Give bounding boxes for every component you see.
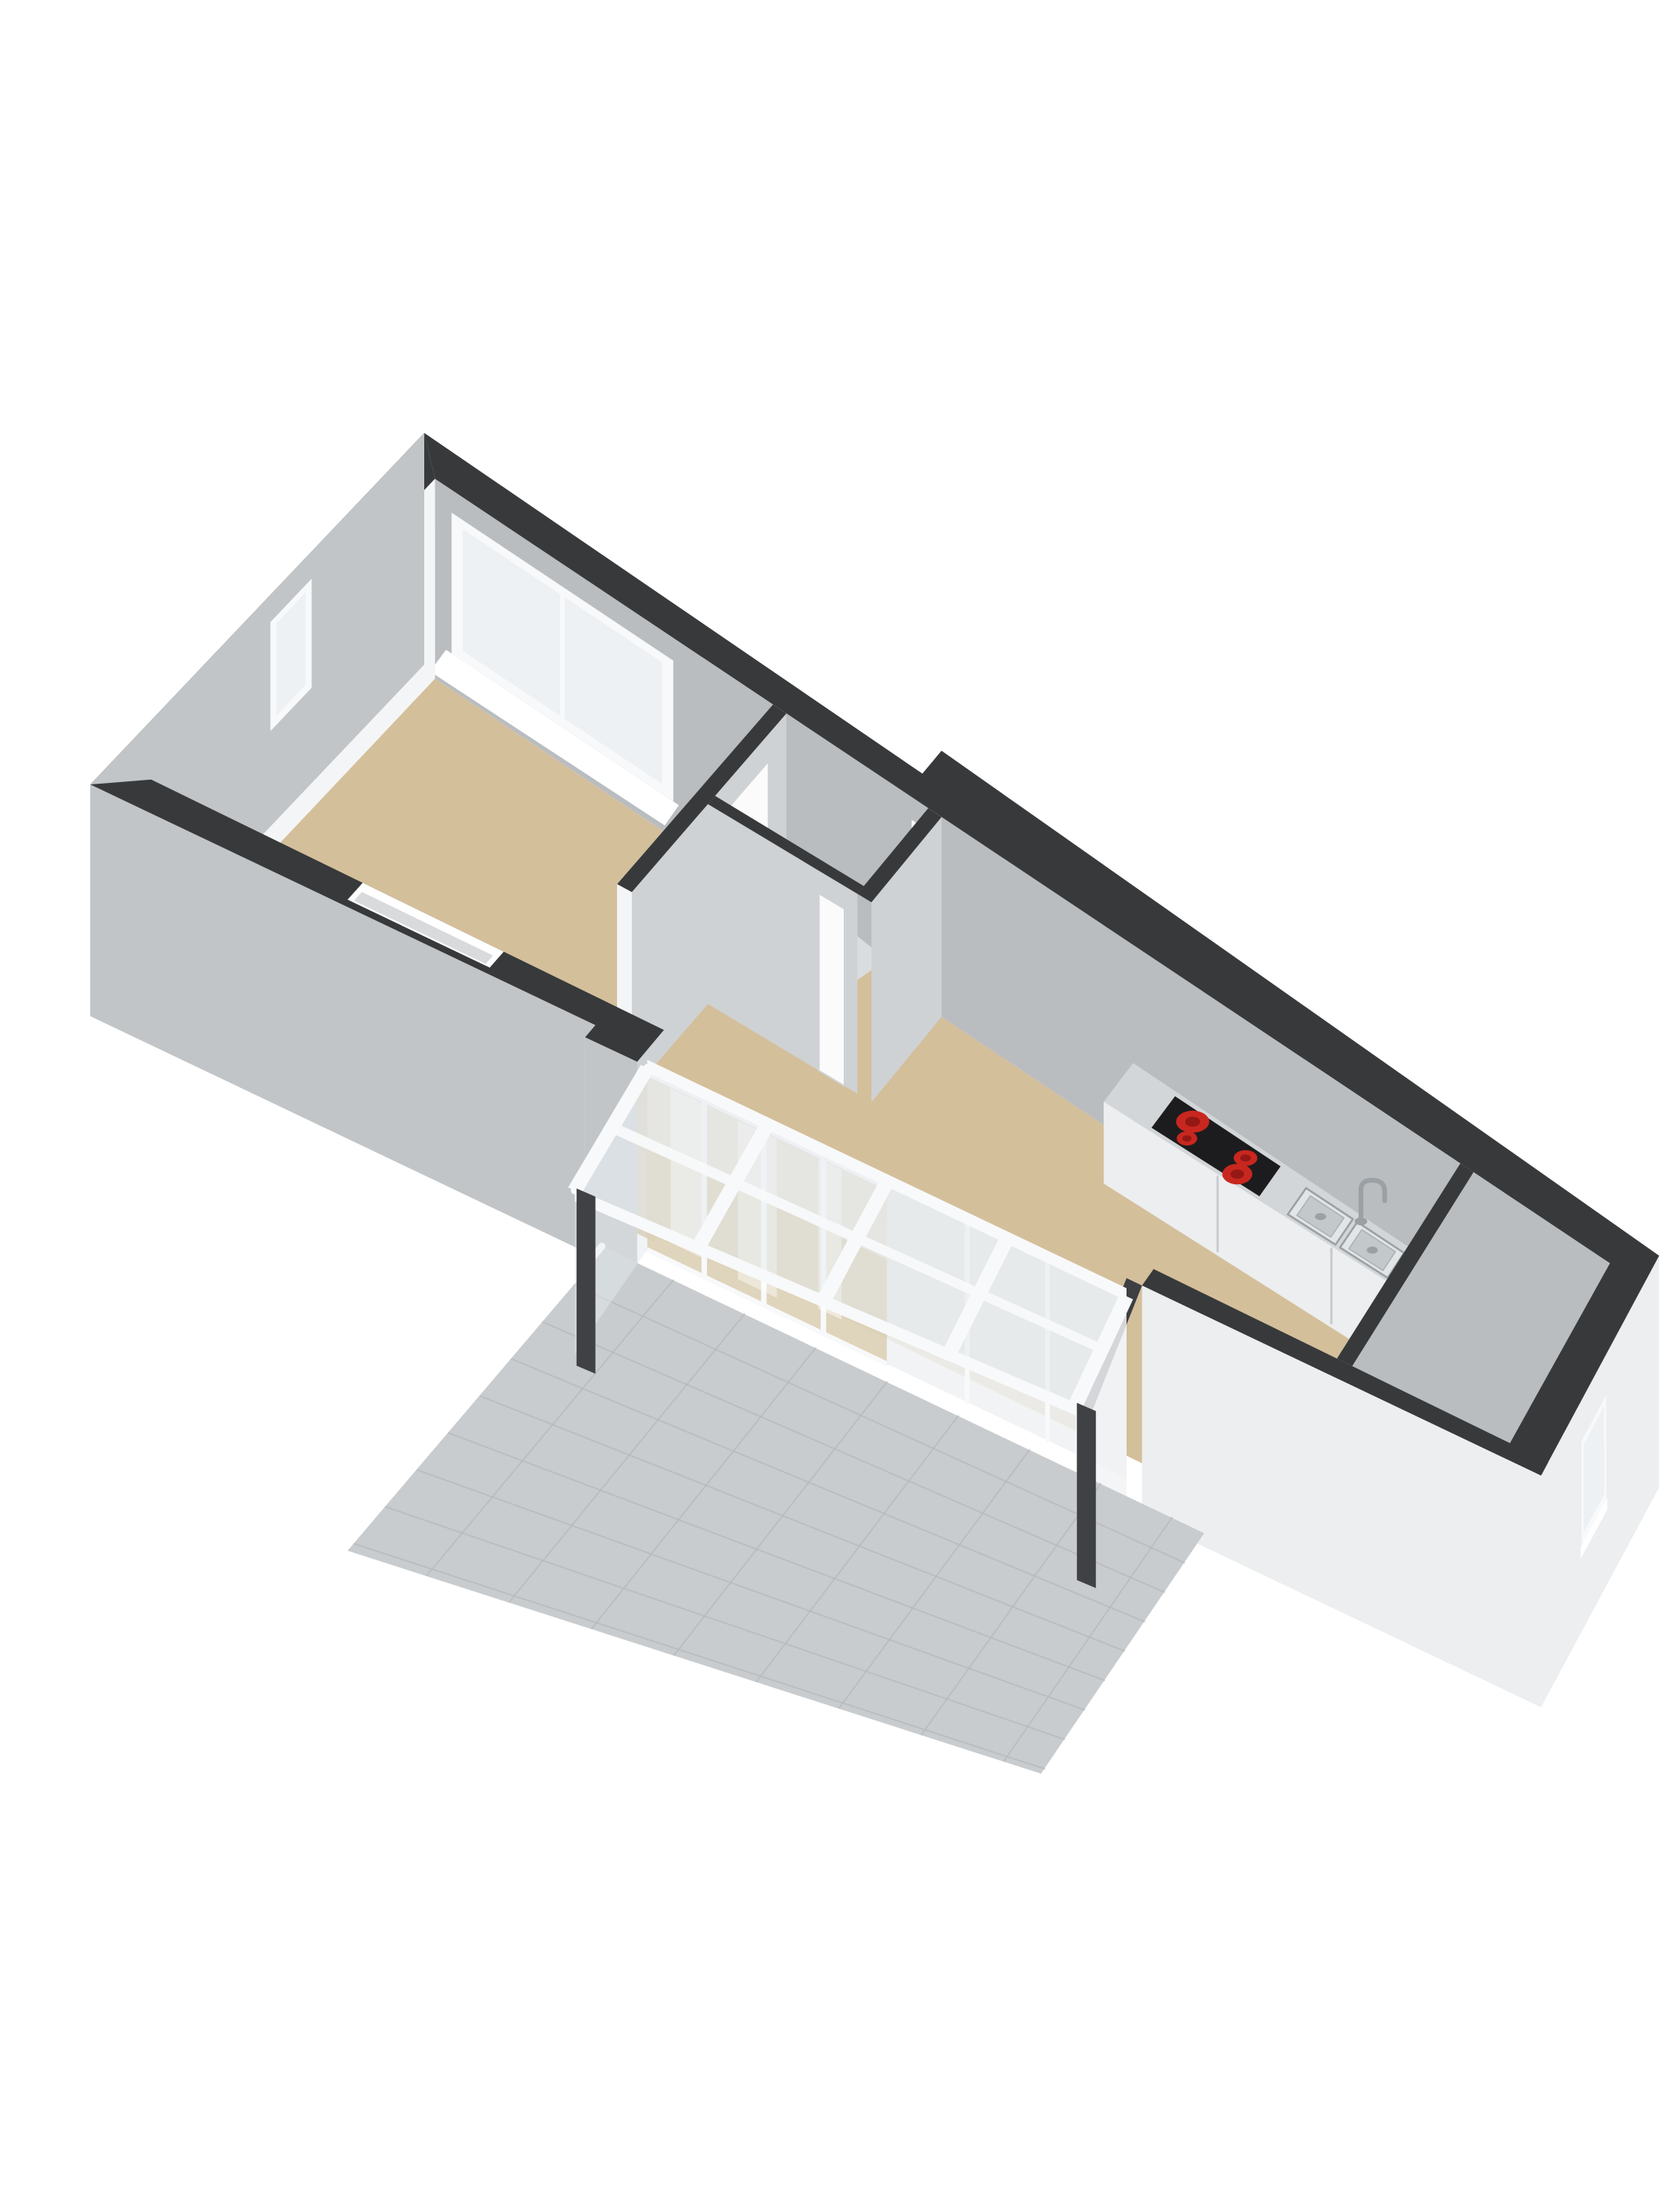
burner-1-inner: [1185, 1117, 1200, 1127]
closet-door: [819, 893, 845, 1086]
floorplan-stage: [0, 0, 1659, 2212]
sink-basin-left-drain: [1315, 1213, 1326, 1220]
sink-basin-right-drain: [1367, 1247, 1378, 1254]
post-east: [1077, 1403, 1096, 1589]
burner-3-inner: [1183, 1135, 1192, 1142]
faucet-base: [1355, 1217, 1367, 1225]
burner-4-inner: [1231, 1169, 1244, 1179]
post-west: [577, 1188, 596, 1374]
floorplan-3d-view: [0, 0, 1659, 2212]
burner-2-inner: [1240, 1154, 1251, 1161]
